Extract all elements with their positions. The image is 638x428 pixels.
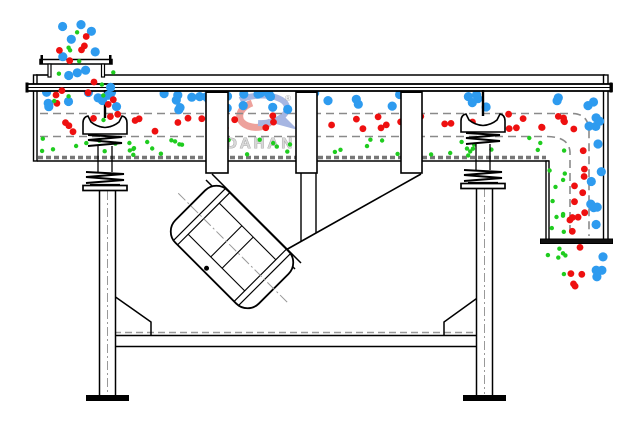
particle (103, 149, 107, 153)
particle (520, 115, 527, 122)
particle (561, 251, 565, 255)
particles-discharge-curve-fine (547, 148, 567, 234)
particle (513, 124, 520, 131)
particle (353, 116, 360, 123)
particle (380, 138, 384, 142)
particle (375, 114, 382, 121)
brand-watermark-text: DAHAN (226, 135, 295, 152)
particles-outfall-medium (568, 244, 586, 290)
particle (106, 83, 115, 92)
particle (85, 89, 92, 96)
particle (556, 255, 560, 259)
motor-support-diagonal-right (284, 174, 421, 251)
particle (365, 144, 369, 148)
particle (174, 105, 183, 114)
particle (368, 138, 372, 142)
particle (262, 124, 269, 131)
particle (388, 102, 397, 111)
particle (66, 94, 70, 98)
deck-support-bar-1 (206, 88, 228, 173)
particle (539, 124, 546, 131)
particle (51, 147, 55, 151)
particle (575, 214, 582, 221)
coil-spring-lower (86, 172, 124, 183)
particle (159, 152, 163, 156)
particle (114, 111, 121, 118)
particle (569, 228, 576, 235)
particle (328, 122, 335, 129)
particle (111, 70, 115, 74)
particle (41, 137, 45, 141)
particle (505, 111, 512, 118)
particle (561, 118, 568, 125)
particle (553, 185, 557, 189)
particle (258, 138, 262, 142)
particle (91, 79, 98, 86)
particle (152, 128, 159, 135)
spring-seat-bracket (461, 114, 505, 132)
particle (285, 149, 289, 153)
particle (77, 59, 81, 63)
particle (187, 93, 196, 102)
particle (448, 120, 455, 127)
particle (563, 171, 567, 175)
particle (64, 71, 73, 80)
particle (231, 116, 238, 123)
coil-spring-lower (464, 170, 502, 181)
particle (581, 166, 588, 173)
foot-pad-right (463, 395, 506, 401)
particle (270, 119, 277, 126)
coil-spring-upper (466, 133, 500, 144)
particle (568, 270, 575, 277)
deck-support-bar-2 (296, 88, 317, 173)
particle (195, 92, 204, 101)
cross-beam (114, 336, 477, 347)
particle (466, 153, 470, 157)
particle (592, 220, 601, 229)
particle (62, 119, 69, 126)
particle (593, 139, 602, 148)
particle (245, 152, 249, 156)
under-frame (86, 161, 506, 401)
particle (75, 30, 79, 34)
particle (338, 148, 342, 152)
particle (360, 125, 367, 132)
particle (266, 92, 275, 101)
body-right-wall (604, 75, 609, 243)
inlet-flange (40, 60, 112, 65)
particle (562, 230, 566, 234)
particle (354, 100, 363, 109)
particle (589, 203, 598, 212)
particle (84, 141, 88, 145)
particle (110, 96, 117, 103)
particle (283, 105, 292, 114)
particle (595, 117, 604, 126)
particle (185, 115, 192, 122)
particle (57, 72, 61, 76)
particle (275, 144, 279, 148)
top-rail-endcap-right (610, 83, 613, 93)
particle (567, 217, 574, 224)
particle (76, 20, 85, 29)
particle (561, 178, 565, 182)
particle (53, 92, 60, 99)
particle (271, 141, 275, 145)
spring-base-plate (83, 186, 127, 191)
particle (441, 121, 448, 128)
particle (70, 128, 77, 135)
particle (581, 173, 588, 180)
spring-base-plate (461, 184, 505, 189)
vibrating-screen-diagram: ® DAHAN (0, 0, 638, 428)
inlet-flange-stub-left (41, 55, 44, 64)
particle (107, 113, 114, 120)
particle (83, 33, 90, 40)
particle (74, 144, 78, 148)
particle (173, 139, 177, 143)
particle (175, 119, 182, 126)
particle (597, 167, 606, 176)
discharge-chute-left-wall (546, 161, 549, 240)
particle (557, 247, 561, 251)
particle (323, 96, 332, 105)
particle (429, 152, 433, 156)
particle (105, 101, 112, 108)
foot-pad-left (86, 395, 129, 401)
particle (67, 35, 76, 44)
particle (40, 149, 44, 153)
particle (550, 226, 554, 230)
particle (546, 253, 550, 257)
inlet-flange-stub-right (109, 55, 112, 64)
particle (550, 199, 554, 203)
registered-mark: ® (285, 94, 291, 103)
particles-discharge-curve-coarse (583, 97, 606, 229)
inlet-wall-right (102, 64, 105, 77)
particle (579, 189, 586, 196)
particle (570, 126, 577, 133)
particle (150, 146, 154, 150)
particle (81, 66, 90, 75)
particle (59, 87, 66, 94)
particle (136, 115, 143, 122)
particle (547, 168, 551, 172)
particle (554, 215, 558, 219)
particle (127, 141, 131, 145)
particle (90, 115, 97, 122)
particle (333, 150, 337, 154)
particles-outfall-coarse (592, 252, 608, 281)
particle (52, 99, 56, 103)
particle (58, 22, 67, 31)
particle (101, 93, 105, 97)
particle (73, 68, 82, 77)
particle (577, 244, 584, 251)
particle (578, 271, 585, 278)
particle (538, 141, 542, 145)
particle (288, 142, 292, 146)
particle (268, 103, 277, 112)
particles-outfall-fine (546, 247, 568, 277)
screen-body (34, 75, 613, 244)
particle (465, 146, 469, 150)
particle (570, 281, 577, 288)
particle (169, 138, 173, 142)
brand-watermark: ® DAHAN (226, 94, 298, 152)
particle (554, 93, 563, 102)
particle (581, 209, 588, 216)
particle (68, 48, 72, 52)
particle (448, 151, 452, 155)
particle (580, 147, 587, 154)
particle (592, 266, 601, 275)
top-rail-endcap-left (26, 83, 29, 93)
discharge-chute-flange (541, 239, 613, 244)
particle (112, 102, 121, 111)
spring-mount-right (461, 90, 505, 189)
particle (56, 47, 63, 54)
particle (177, 142, 181, 146)
particle (536, 148, 540, 152)
deck-support-bar-3 (401, 88, 422, 173)
particle (459, 140, 463, 144)
particle (562, 272, 566, 276)
particle (561, 214, 565, 218)
particle (506, 125, 513, 132)
particle (101, 118, 105, 122)
particle (145, 140, 149, 144)
particle (91, 47, 100, 56)
particle (571, 183, 578, 190)
particle (583, 101, 592, 110)
particle (198, 115, 205, 122)
particle (78, 47, 85, 54)
particle (587, 177, 596, 186)
particle (527, 136, 531, 140)
particle (598, 252, 607, 261)
particle (585, 122, 594, 131)
particle (100, 82, 104, 86)
particle (468, 98, 477, 107)
particle (378, 125, 385, 132)
particle (131, 153, 135, 157)
particle (269, 112, 276, 119)
particles-feed-above-coarse (58, 20, 100, 61)
particle (562, 148, 566, 152)
inlet-wall-left (48, 64, 51, 77)
particle (239, 101, 248, 110)
particle (131, 147, 135, 151)
particle (66, 57, 73, 64)
particle (395, 152, 399, 156)
particle (571, 198, 578, 205)
